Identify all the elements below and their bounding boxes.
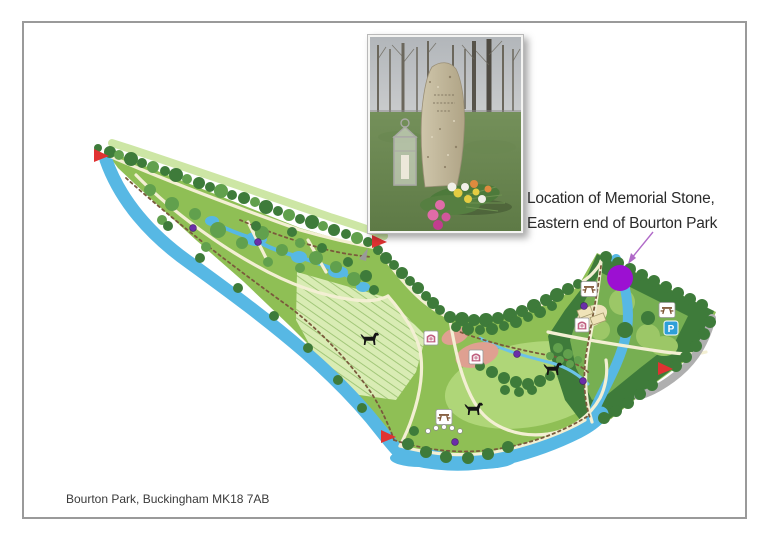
picnic-area-icon [581, 282, 597, 297]
picnic-area-icon [436, 410, 452, 425]
waymarker-dot [255, 239, 262, 246]
stepping-stone-dot [426, 429, 431, 434]
play-area-icon [575, 318, 589, 332]
picnic-area-icon [659, 303, 675, 318]
memorial-stone-marker [607, 265, 633, 291]
annotation-arrow [628, 232, 653, 264]
stepping-stone-dot [442, 425, 447, 430]
waymarker-dot [514, 351, 521, 358]
memorial-location-line1: Location of Memorial Stone, [527, 186, 757, 211]
memorial-stone [421, 63, 464, 187]
waymarker-dot [452, 439, 459, 446]
memorial-location-label: Location of Memorial Stone, Eastern end … [527, 186, 757, 236]
svg-text:P: P [668, 324, 675, 335]
memorial-location-line2: Eastern end of Bourton Park [527, 211, 757, 236]
memorial-photo [367, 34, 524, 234]
memorial-photo-image [370, 37, 521, 231]
parking-icon: P [664, 321, 678, 335]
stepping-stone-dot [458, 429, 463, 434]
waymarker-dot [580, 378, 587, 385]
stepping-stone-dot [434, 426, 439, 431]
play-area-icon [469, 350, 483, 364]
waymarker-dot [190, 225, 197, 232]
play-area-icon [424, 331, 438, 345]
stepping-stone-dot [450, 426, 455, 431]
address-caption: Bourton Park, Buckingham MK18 7AB [66, 492, 269, 506]
waymarker-dot [581, 303, 588, 310]
page: P [0, 0, 768, 543]
